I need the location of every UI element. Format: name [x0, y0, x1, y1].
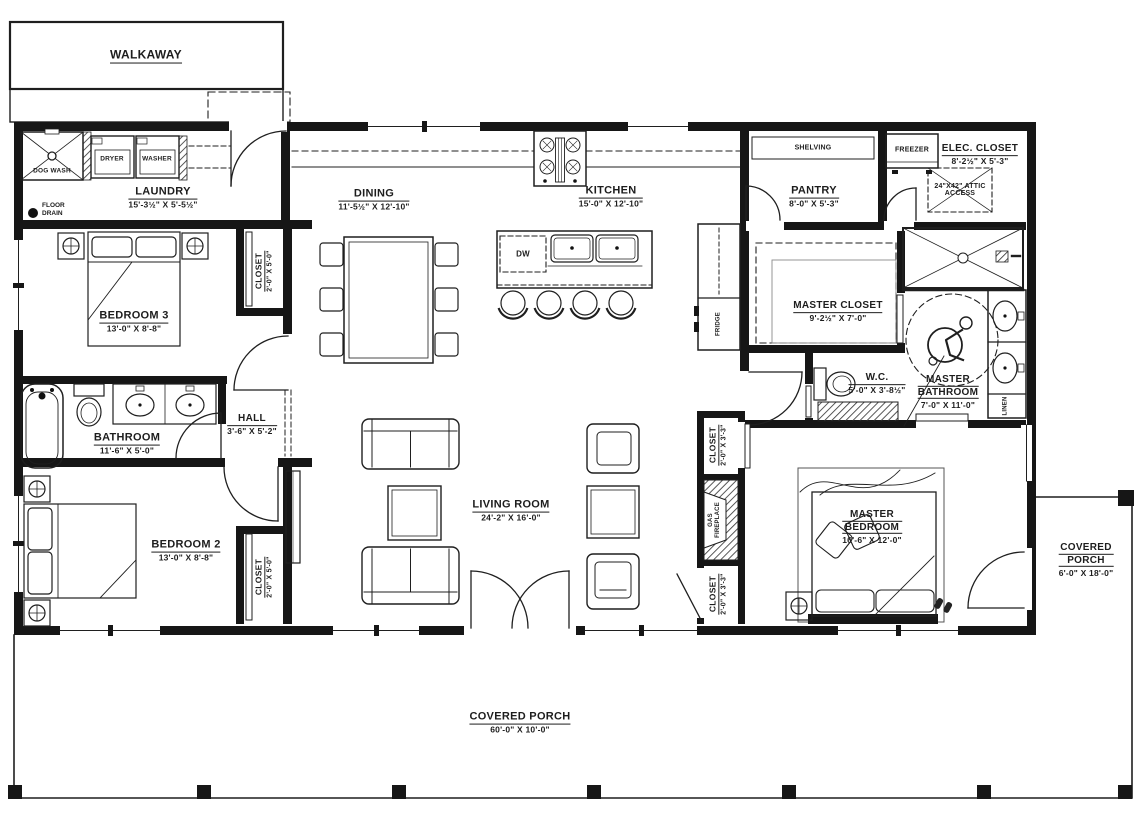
closet-hall-lower-label: CLOSET2'-0" X 3'-3" [708, 573, 727, 614]
bathroom-label: BATHROOM11'-6" X 5'-0" [94, 432, 160, 457]
toilet [74, 384, 104, 426]
floor-drain-label: FLOOR DRAIN [42, 202, 65, 218]
side-table-right [587, 486, 639, 538]
closet-bedroom3-label: CLOSET2'-0" X 5'-0" [254, 250, 273, 291]
pantry-label: PANTRY8'-0" X 5'-3" [789, 185, 839, 210]
closet-bedroom2-label: CLOSET2'-0" X 5'-0" [254, 556, 273, 597]
side-table-left [388, 486, 441, 540]
kitchen-island [497, 231, 652, 288]
armchair-top [587, 424, 639, 473]
nightstand [24, 600, 50, 626]
porch-posts [8, 490, 1134, 799]
covered-porch-right-label: COVERED PORCH 6'-0" X 18'-0" [1059, 542, 1114, 578]
floor-plan-drawing [0, 0, 1146, 826]
hall-label: HALL3'-6" X 5'-2" [227, 413, 277, 437]
master-bathroom-label: MASTER BATHROOM 7'-0" X 11'-0" [918, 374, 979, 410]
sofa-bottom [362, 547, 459, 604]
bedroom2-furniture [24, 476, 136, 626]
dryer-label: DRYER [100, 156, 124, 163]
bathtub [21, 384, 63, 468]
washer-label: WASHER [142, 156, 172, 163]
covered-porch-bottom-label: COVERED PORCH60'-0" X 10'-0" [469, 711, 570, 736]
armchair-bottom [587, 554, 639, 609]
wc-vanity [818, 402, 898, 421]
walkaway-structure [10, 22, 290, 122]
laundry-counter [189, 146, 231, 168]
kitchen-label: KITCHEN15'-0" X 12'-10" [579, 185, 643, 210]
attic-access-label: 24"X42" ATTIC ACCESS [934, 183, 985, 197]
closet-hall-upper-label: CLOSET2'-0" X 3'-3" [708, 424, 727, 465]
wc-label: W.C.5'-0" X 3'-8½" [849, 372, 906, 396]
master-closet-label: MASTER CLOSET9'-2½" X 7'-0" [793, 300, 882, 324]
dining-label: DINING11'-5½" X 12'-10" [338, 188, 409, 213]
elec-closet-label: ELEC. CLOSET8'-2½" X 5'-3" [942, 143, 1018, 167]
nightstand [24, 476, 50, 502]
bar-stools [499, 291, 635, 319]
bedroom3-label: BEDROOM 313'-0" X 8'-8" [99, 310, 168, 335]
gas-fireplace-label: GAS FIREPLACE [708, 502, 722, 538]
nightstand [182, 233, 208, 259]
shelving-label: SHELVING [795, 145, 832, 152]
covered-porch-outline [8, 490, 1134, 799]
laundry-label: LAUNDRY15'-3½" X 5'-5½" [128, 186, 197, 211]
range [534, 131, 586, 186]
dog-wash-label: DOG WASH [33, 168, 71, 175]
dining-set [320, 237, 458, 363]
freezer-label: FREEZER [895, 147, 929, 154]
dishwasher-label: DW [516, 250, 530, 259]
master-bedroom-label: MASTER BEDROOM 16'-6" X 12'-0" [842, 509, 902, 545]
master-closet-shelving [756, 243, 896, 343]
master-bedroom-furniture [786, 468, 953, 624]
floor-plan: WALKAWAY LAUNDRY15'-3½" X 5'-5½" DINING1… [0, 0, 1146, 826]
shower [903, 228, 1023, 290]
kitchen-fixtures [292, 131, 740, 350]
sofa-top [362, 419, 459, 469]
linen-label: LINEN [1002, 397, 1009, 416]
nightstand [58, 233, 84, 259]
floor-drain-icon [28, 208, 38, 218]
bedroom2-label: BEDROOM 213'-0" X 8'-8" [151, 539, 220, 564]
fridge-label: FRIDGE [715, 312, 722, 336]
walkaway-label: WALKAWAY [110, 49, 182, 64]
living-room-label: LIVING ROOM24'-2" X 16'-0" [472, 499, 549, 524]
